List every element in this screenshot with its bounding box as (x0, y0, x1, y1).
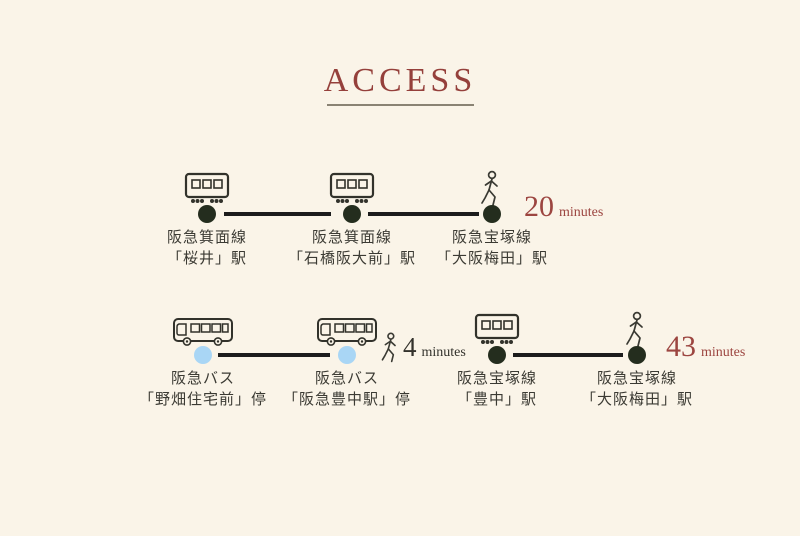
station-line-name: 阪急宝塚線 (522, 369, 752, 390)
bus-stop-dot (338, 346, 356, 364)
station-label: 阪急宝塚線 「大阪梅田」駅 (522, 369, 752, 411)
station-name: 「大阪梅田」駅 (522, 390, 752, 411)
walk-icon (623, 311, 649, 349)
station-dot (488, 346, 506, 364)
route1-duration: 20 minutes (524, 190, 603, 224)
route-line (368, 212, 479, 216)
station-label: 阪急宝塚線 「大阪梅田」駅 (377, 228, 607, 270)
access-infographic: ACCESS 阪急箕面線 「桜井」駅 (0, 0, 800, 536)
duration-unit: minutes (559, 205, 603, 221)
duration-unit: minutes (701, 345, 745, 361)
duration-value: 4 (403, 332, 417, 363)
train-icon (473, 313, 521, 349)
bus-icon (172, 316, 234, 350)
duration-unit: minutes (422, 345, 466, 361)
route-line (513, 353, 623, 357)
station-dot (483, 205, 501, 223)
bus-stop-dot (194, 346, 212, 364)
station-line-name: 阪急宝塚線 (377, 228, 607, 249)
duration-value: 43 (666, 330, 696, 364)
title-underline (327, 104, 474, 106)
route2-duration: 43 minutes (666, 330, 745, 364)
station-name: 「大阪梅田」駅 (377, 249, 607, 270)
train-icon (183, 172, 231, 208)
page-title: ACCESS (324, 62, 477, 100)
transfer-duration: 4 minutes (403, 332, 466, 363)
bus-icon (316, 316, 378, 350)
station-dot (628, 346, 646, 364)
route-line (218, 353, 330, 357)
route-line (224, 212, 331, 216)
duration-value: 20 (524, 190, 554, 224)
walk-icon (478, 170, 504, 208)
train-icon (328, 172, 376, 208)
walk-icon (379, 332, 401, 364)
station-dot (198, 205, 216, 223)
station-dot (343, 205, 361, 223)
